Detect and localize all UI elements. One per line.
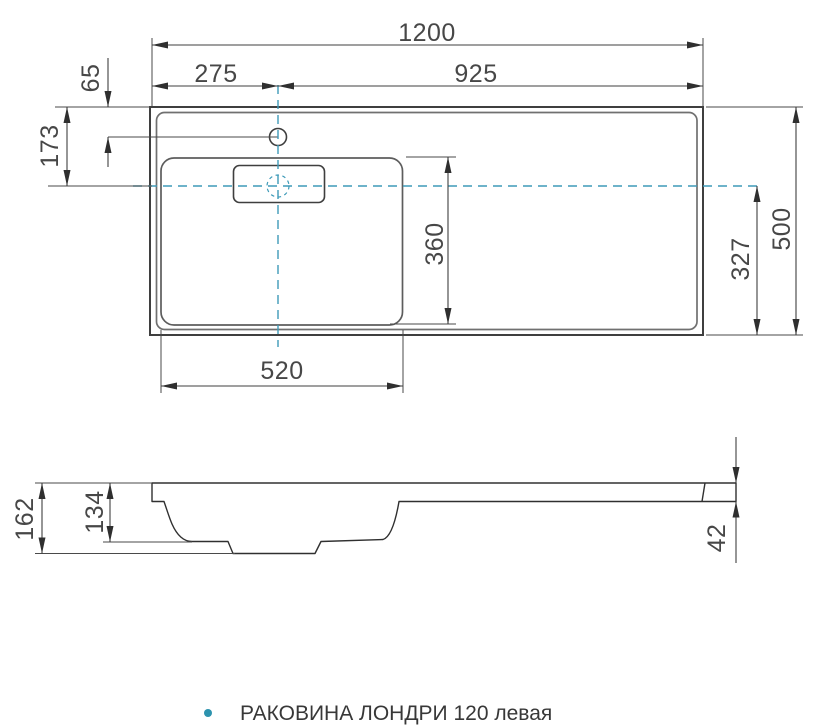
technical-drawing: 1200 275 925 65 173 [0, 0, 814, 728]
sink-rim-line [157, 113, 698, 330]
dim-label: 925 [454, 60, 497, 88]
arrowhead [687, 42, 703, 49]
dim-faucet-from-top: 65 [55, 58, 150, 167]
dim-overall-height: 162 [11, 483, 235, 554]
arrowhead [754, 186, 761, 202]
dim-label: 65 [77, 64, 105, 93]
arrowhead [445, 157, 452, 173]
arrowhead [445, 308, 452, 324]
side-view: 162 134 42 [11, 437, 740, 563]
dim-label: 134 [81, 490, 109, 533]
arrowhead [278, 83, 294, 90]
dim-label: 327 [727, 237, 755, 280]
dim-basin-inner-depth: 360 [390, 157, 456, 324]
caption: РАКОВИНА ЛОНДРИ 120 левая [204, 702, 552, 725]
arrowhead [733, 502, 740, 518]
top-view: 1200 275 925 65 173 [36, 19, 803, 393]
arrowhead [161, 383, 177, 390]
dim-faucet-offsets: 275 925 [152, 60, 703, 90]
dim-label: 360 [421, 222, 449, 265]
dim-overall-depth: 500 [706, 107, 803, 335]
dim-basin-center-from-top: 173 [36, 107, 152, 186]
arrowhead [105, 137, 112, 153]
arrowhead [105, 91, 112, 107]
arrowhead [64, 170, 71, 186]
arrowhead [39, 538, 46, 554]
arrowhead [733, 467, 740, 483]
arrowhead [152, 83, 168, 90]
arrowhead [39, 483, 46, 499]
dim-label: 173 [36, 124, 64, 167]
arrowhead [687, 83, 703, 90]
arrowhead [793, 319, 800, 335]
dim-label: 520 [260, 357, 303, 385]
dim-label: 42 [703, 524, 731, 553]
drawing-canvas: 1200 275 925 65 173 [0, 0, 814, 728]
dim-deck-thickness: 42 [703, 437, 740, 563]
arrowhead [793, 107, 800, 123]
arrowhead [387, 383, 403, 390]
dim-basin-width: 520 [161, 330, 403, 393]
deck-edge-tick [702, 483, 705, 502]
list-bullet-icon [204, 709, 212, 717]
dim-label: 500 [768, 207, 796, 250]
dim-center-to-front: 327 [727, 186, 761, 335]
dim-label: 1200 [398, 19, 456, 47]
arrowhead [64, 107, 71, 123]
arrowhead [152, 42, 168, 49]
dim-bowl-depth: 134 [81, 483, 192, 542]
basin-outline [161, 158, 403, 325]
arrowhead [262, 83, 278, 90]
dim-label: 275 [194, 60, 237, 88]
product-caption: РАКОВИНА ЛОНДРИ 120 левая [240, 702, 552, 725]
dim-label: 162 [11, 497, 39, 540]
sink-outer-outline [150, 107, 703, 335]
sink-profile [152, 483, 736, 554]
arrowhead [754, 319, 761, 335]
